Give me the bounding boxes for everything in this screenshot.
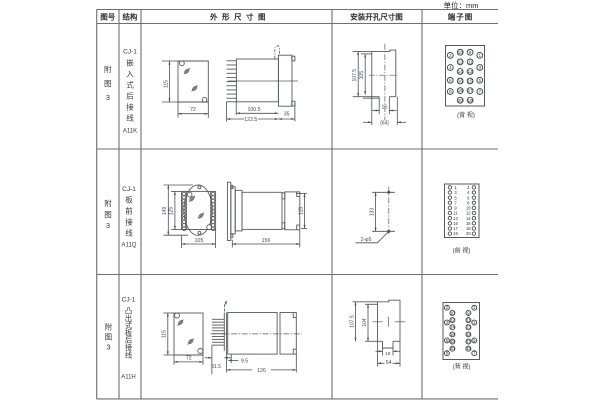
svg-text:A11K: A11K: [123, 129, 137, 135]
svg-text:前: 前: [125, 205, 133, 215]
svg-text:10: 10: [450, 310, 455, 315]
svg-text:CJ-1: CJ-1: [122, 186, 136, 193]
svg-text:(前 视): (前 视): [453, 247, 471, 255]
svg-text:107.5: 107.5: [352, 69, 358, 82]
svg-text:10: 10: [458, 50, 463, 55]
svg-text:115: 115: [298, 207, 304, 215]
svg-text:安装开孔尺寸图: 安装开孔尺寸图: [350, 12, 403, 22]
svg-text:72: 72: [190, 107, 196, 113]
svg-text:附: 附: [104, 65, 112, 74]
svg-text:125: 125: [169, 207, 175, 216]
svg-text:20: 20: [466, 231, 471, 236]
svg-text:13: 13: [466, 325, 471, 330]
svg-text:嵌: 嵌: [126, 58, 134, 67]
svg-text:107.5: 107.5: [349, 315, 355, 328]
svg-text:图: 图: [104, 210, 112, 219]
svg-text:单位：mm: 单位：mm: [444, 0, 479, 10]
svg-text:3: 3: [106, 343, 110, 352]
svg-text:15: 15: [466, 332, 471, 337]
svg-text:126: 126: [257, 368, 266, 374]
svg-text:图: 图: [104, 79, 112, 88]
svg-text:图: 图: [105, 333, 113, 342]
svg-text:105: 105: [359, 71, 365, 80]
svg-text:3: 3: [106, 221, 110, 230]
svg-text:接: 接: [126, 101, 134, 111]
svg-text:[64]: [64]: [380, 120, 389, 126]
svg-text:后: 后: [126, 90, 134, 100]
svg-text:接: 接: [125, 216, 133, 226]
svg-text:3: 3: [106, 93, 110, 102]
svg-text:17: 17: [468, 88, 473, 93]
svg-text:2-φ5: 2-φ5: [361, 237, 372, 243]
svg-text:附: 附: [104, 199, 112, 208]
svg-text:A11H: A11H: [121, 375, 136, 381]
svg-text:14: 14: [450, 325, 455, 330]
svg-text:式: 式: [126, 79, 134, 89]
svg-text:(背 视): (背 视): [453, 363, 471, 371]
svg-text:17: 17: [466, 339, 471, 344]
svg-text:115: 115: [163, 80, 169, 88]
svg-text:35: 35: [284, 112, 290, 118]
svg-text:CJ-1: CJ-1: [122, 297, 136, 304]
svg-text:16: 16: [385, 351, 391, 356]
svg-text:20: 20: [450, 346, 455, 351]
svg-text:18: 18: [458, 88, 463, 93]
svg-text:端子图: 端子图: [448, 12, 474, 22]
svg-text:16: 16: [458, 79, 463, 84]
svg-text:72: 72: [186, 356, 192, 362]
svg-text:11: 11: [466, 318, 471, 323]
svg-text:12: 12: [450, 318, 455, 323]
svg-text:线: 线: [125, 227, 133, 237]
svg-text:图号: 图号: [100, 13, 115, 22]
svg-text:20: 20: [458, 98, 463, 103]
svg-text:结构: 结构: [123, 12, 138, 22]
svg-text:板: 板: [125, 194, 133, 204]
svg-text:附: 附: [105, 323, 113, 332]
svg-text:156: 156: [262, 238, 271, 244]
svg-text:外形尺寸图: 外形尺寸图: [210, 12, 270, 22]
svg-text:19: 19: [466, 346, 471, 351]
svg-text:104: 104: [362, 318, 368, 327]
svg-text:19: 19: [468, 98, 473, 103]
svg-text:64: 64: [386, 360, 392, 366]
svg-text:线: 线: [125, 350, 133, 359]
svg-text:CJ-1: CJ-1: [123, 49, 137, 56]
svg-text:19: 19: [453, 231, 458, 236]
svg-text:15: 15: [468, 79, 473, 84]
svg-text:11: 11: [468, 59, 473, 64]
svg-text:线: 线: [126, 112, 134, 122]
svg-text:16: 16: [382, 104, 388, 110]
svg-text:122.5: 122.5: [244, 117, 257, 123]
svg-text:16: 16: [450, 332, 455, 337]
svg-text:(背 视): (背 视): [457, 111, 475, 119]
svg-text:105: 105: [195, 238, 204, 244]
svg-text:9.5: 9.5: [241, 358, 248, 364]
svg-text:100.5: 100.5: [248, 107, 261, 113]
svg-text:149: 149: [162, 207, 168, 216]
svg-text:115: 115: [162, 330, 168, 338]
svg-text:入: 入: [126, 69, 134, 78]
svg-text:31.5: 31.5: [211, 364, 221, 370]
svg-text:12: 12: [458, 59, 463, 64]
svg-text:18: 18: [450, 339, 455, 344]
svg-text:A11Q: A11Q: [122, 242, 137, 248]
svg-text:133: 133: [369, 208, 375, 217]
svg-text:14: 14: [458, 69, 463, 74]
svg-text:13: 13: [468, 69, 473, 74]
